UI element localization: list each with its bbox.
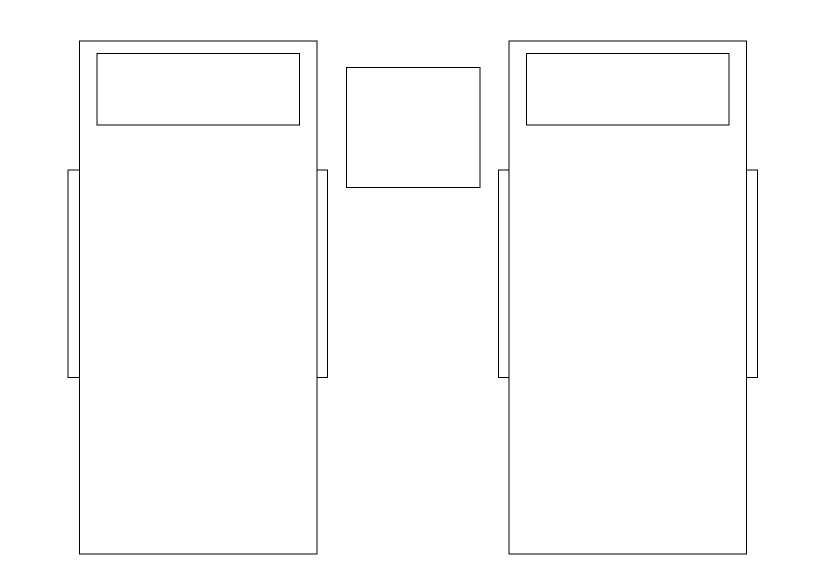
right-bed-pillow	[527, 54, 730, 126]
floor-plan-svg	[0, 0, 826, 583]
left-bed-pillow	[97, 54, 300, 126]
right-bed-frame	[509, 41, 747, 554]
left-bed-right-rail	[317, 170, 328, 378]
drawing-canvas	[0, 0, 826, 583]
right-bed-left-rail	[499, 170, 510, 378]
left-bed-left-rail	[68, 170, 80, 378]
left-bed-frame	[80, 41, 318, 554]
nightstand	[347, 68, 481, 188]
right-bed-right-rail	[747, 170, 758, 378]
